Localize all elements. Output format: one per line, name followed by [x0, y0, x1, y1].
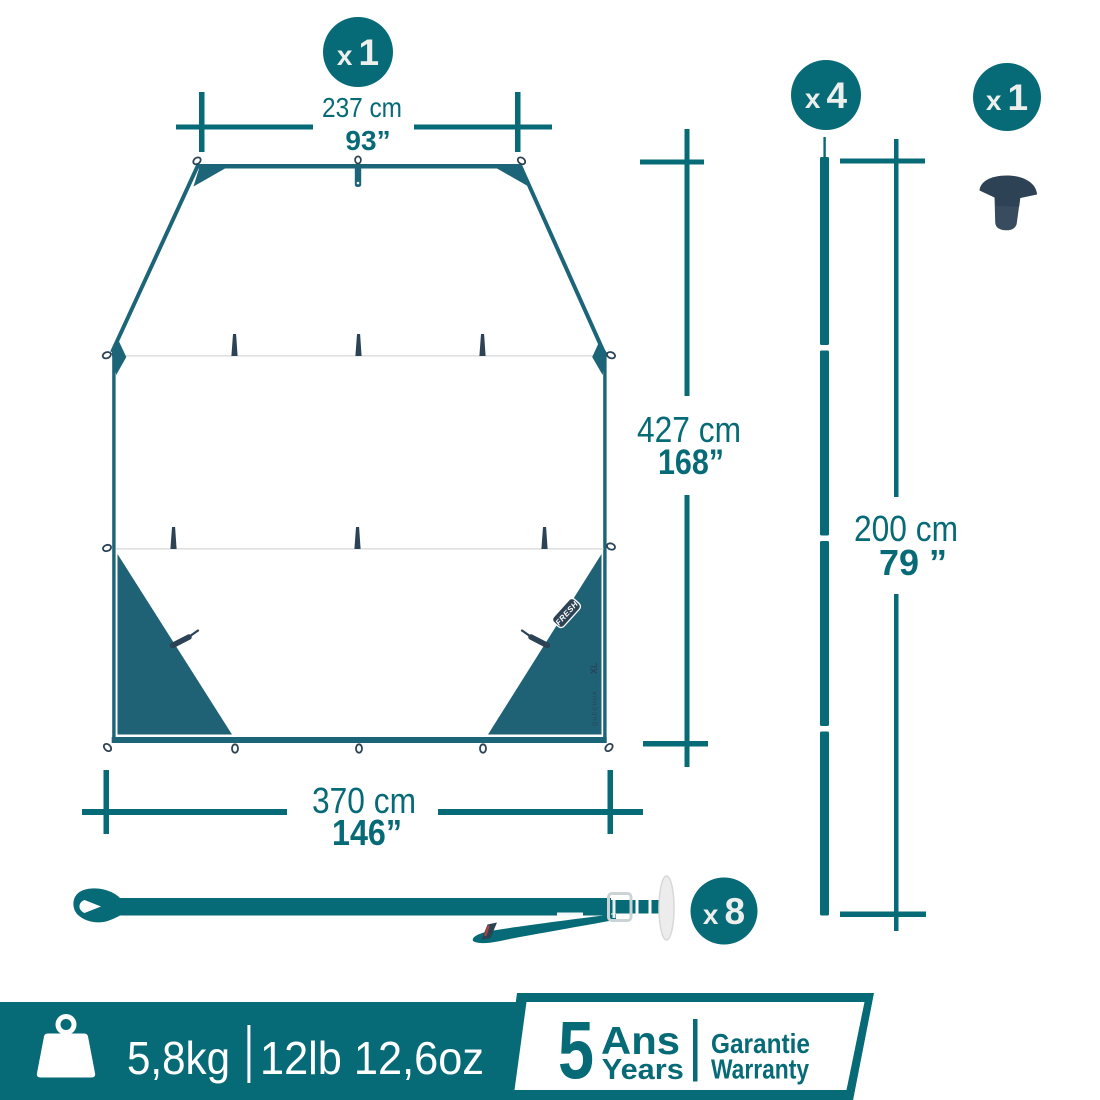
svg-text:93”: 93”	[345, 125, 390, 156]
svg-text:12lb 12,6oz: 12lb 12,6oz	[260, 1032, 484, 1084]
svg-text:Warranty: Warranty	[711, 1054, 809, 1085]
svg-text:5,8kg: 5,8kg	[127, 1032, 230, 1084]
svg-text:Years: Years	[602, 1054, 684, 1086]
svg-text:| tarp |: | tarp |	[593, 675, 599, 690]
svg-text:QUECHUA: QUECHUA	[593, 690, 599, 726]
svg-text:79 ”: 79 ”	[879, 542, 947, 583]
svg-text:XL: XL	[589, 662, 599, 674]
svg-text:237 cm: 237 cm	[322, 92, 402, 123]
svg-text:168”: 168”	[658, 443, 724, 482]
svg-text:146”: 146”	[332, 812, 402, 853]
svg-text:5: 5	[558, 1005, 594, 1096]
